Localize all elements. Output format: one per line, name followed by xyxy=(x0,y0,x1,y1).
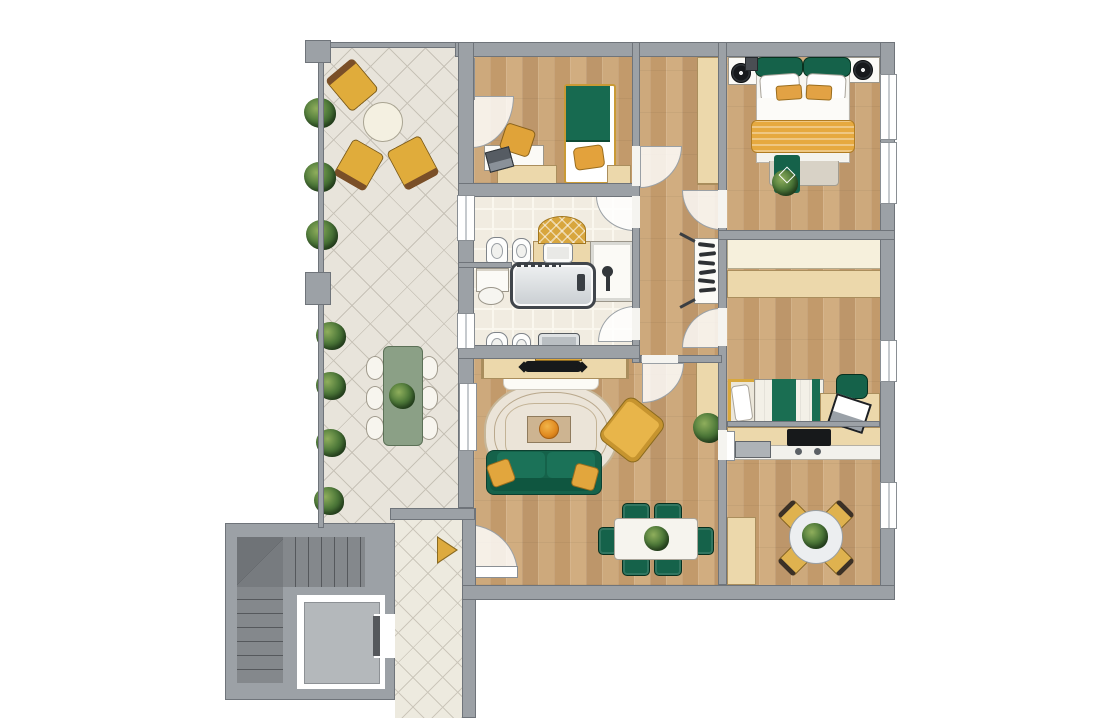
bottom-wall xyxy=(462,585,895,600)
pillow-gold xyxy=(776,84,803,101)
stair-winder xyxy=(237,537,283,587)
bath-rug-gold xyxy=(538,216,586,244)
blanket-gold xyxy=(751,120,855,153)
elevator-cab xyxy=(304,602,380,684)
cooktop-knob xyxy=(814,448,821,455)
bed-stripe-green xyxy=(772,379,796,426)
terrace-round-table xyxy=(363,102,403,142)
floor-plan xyxy=(0,0,1093,718)
terrace-hall-divider xyxy=(390,508,475,520)
bath-divider-wall xyxy=(458,262,512,268)
door-opening xyxy=(632,196,640,228)
kitchen-tall-cabinet xyxy=(727,517,756,585)
bidet xyxy=(512,238,531,263)
wall-device xyxy=(745,57,758,71)
bath-window xyxy=(457,195,475,241)
door-opening xyxy=(718,430,727,460)
garden-chair xyxy=(366,416,384,440)
cooktop-hood xyxy=(787,429,831,446)
kitchen-sink xyxy=(733,441,771,458)
bowl-orange xyxy=(539,419,559,439)
pillar xyxy=(305,272,331,305)
garden-chair xyxy=(366,356,384,380)
door-opening xyxy=(632,308,640,340)
top-wall xyxy=(455,42,895,57)
master-window xyxy=(880,74,897,140)
tv xyxy=(525,361,581,372)
guest-window xyxy=(880,340,897,382)
kitchen-window xyxy=(880,482,897,529)
bath-south-wall xyxy=(458,345,640,359)
shower-fixture-stem xyxy=(606,275,610,291)
elevator-door-panel xyxy=(373,616,380,656)
sideboard-wood xyxy=(727,270,881,298)
living-tall-cabinet xyxy=(696,357,719,420)
toilet xyxy=(486,237,508,264)
table-plant xyxy=(644,526,669,551)
kids-dresser xyxy=(607,165,631,184)
kids-south-wall xyxy=(458,183,640,197)
table-plant xyxy=(389,383,415,409)
towel-basket xyxy=(478,287,504,305)
cooktop-knob xyxy=(795,448,802,455)
door-opening xyxy=(642,355,678,363)
master-window xyxy=(880,142,897,204)
entrance-arrow xyxy=(438,538,456,562)
bath-window xyxy=(457,313,475,349)
bathtub-faucet xyxy=(577,274,585,291)
bathtub-jets xyxy=(517,263,561,267)
pillow-gold xyxy=(806,84,833,100)
door-opening xyxy=(718,308,727,346)
hall-right-wall xyxy=(462,508,476,718)
bed-duvet-green xyxy=(566,86,610,142)
door-opening xyxy=(718,190,727,228)
pillar xyxy=(305,40,331,63)
speaker xyxy=(853,60,873,80)
stair-flight-top xyxy=(283,537,365,587)
stair-flight-left xyxy=(237,587,283,683)
master-south-wall xyxy=(718,230,895,240)
bed-stripe-green xyxy=(812,379,820,426)
guest-kitchen-wall xyxy=(727,421,880,427)
bed-pillow-gold xyxy=(573,144,606,171)
table-plant xyxy=(802,523,828,549)
garden-chair xyxy=(366,386,384,410)
living-window xyxy=(459,383,477,451)
sideboard-cream xyxy=(727,239,881,269)
terrace-top-wall xyxy=(318,42,458,48)
door-opening xyxy=(632,146,640,186)
hall-wardrobe xyxy=(697,57,720,185)
vanity-sink xyxy=(543,243,573,263)
